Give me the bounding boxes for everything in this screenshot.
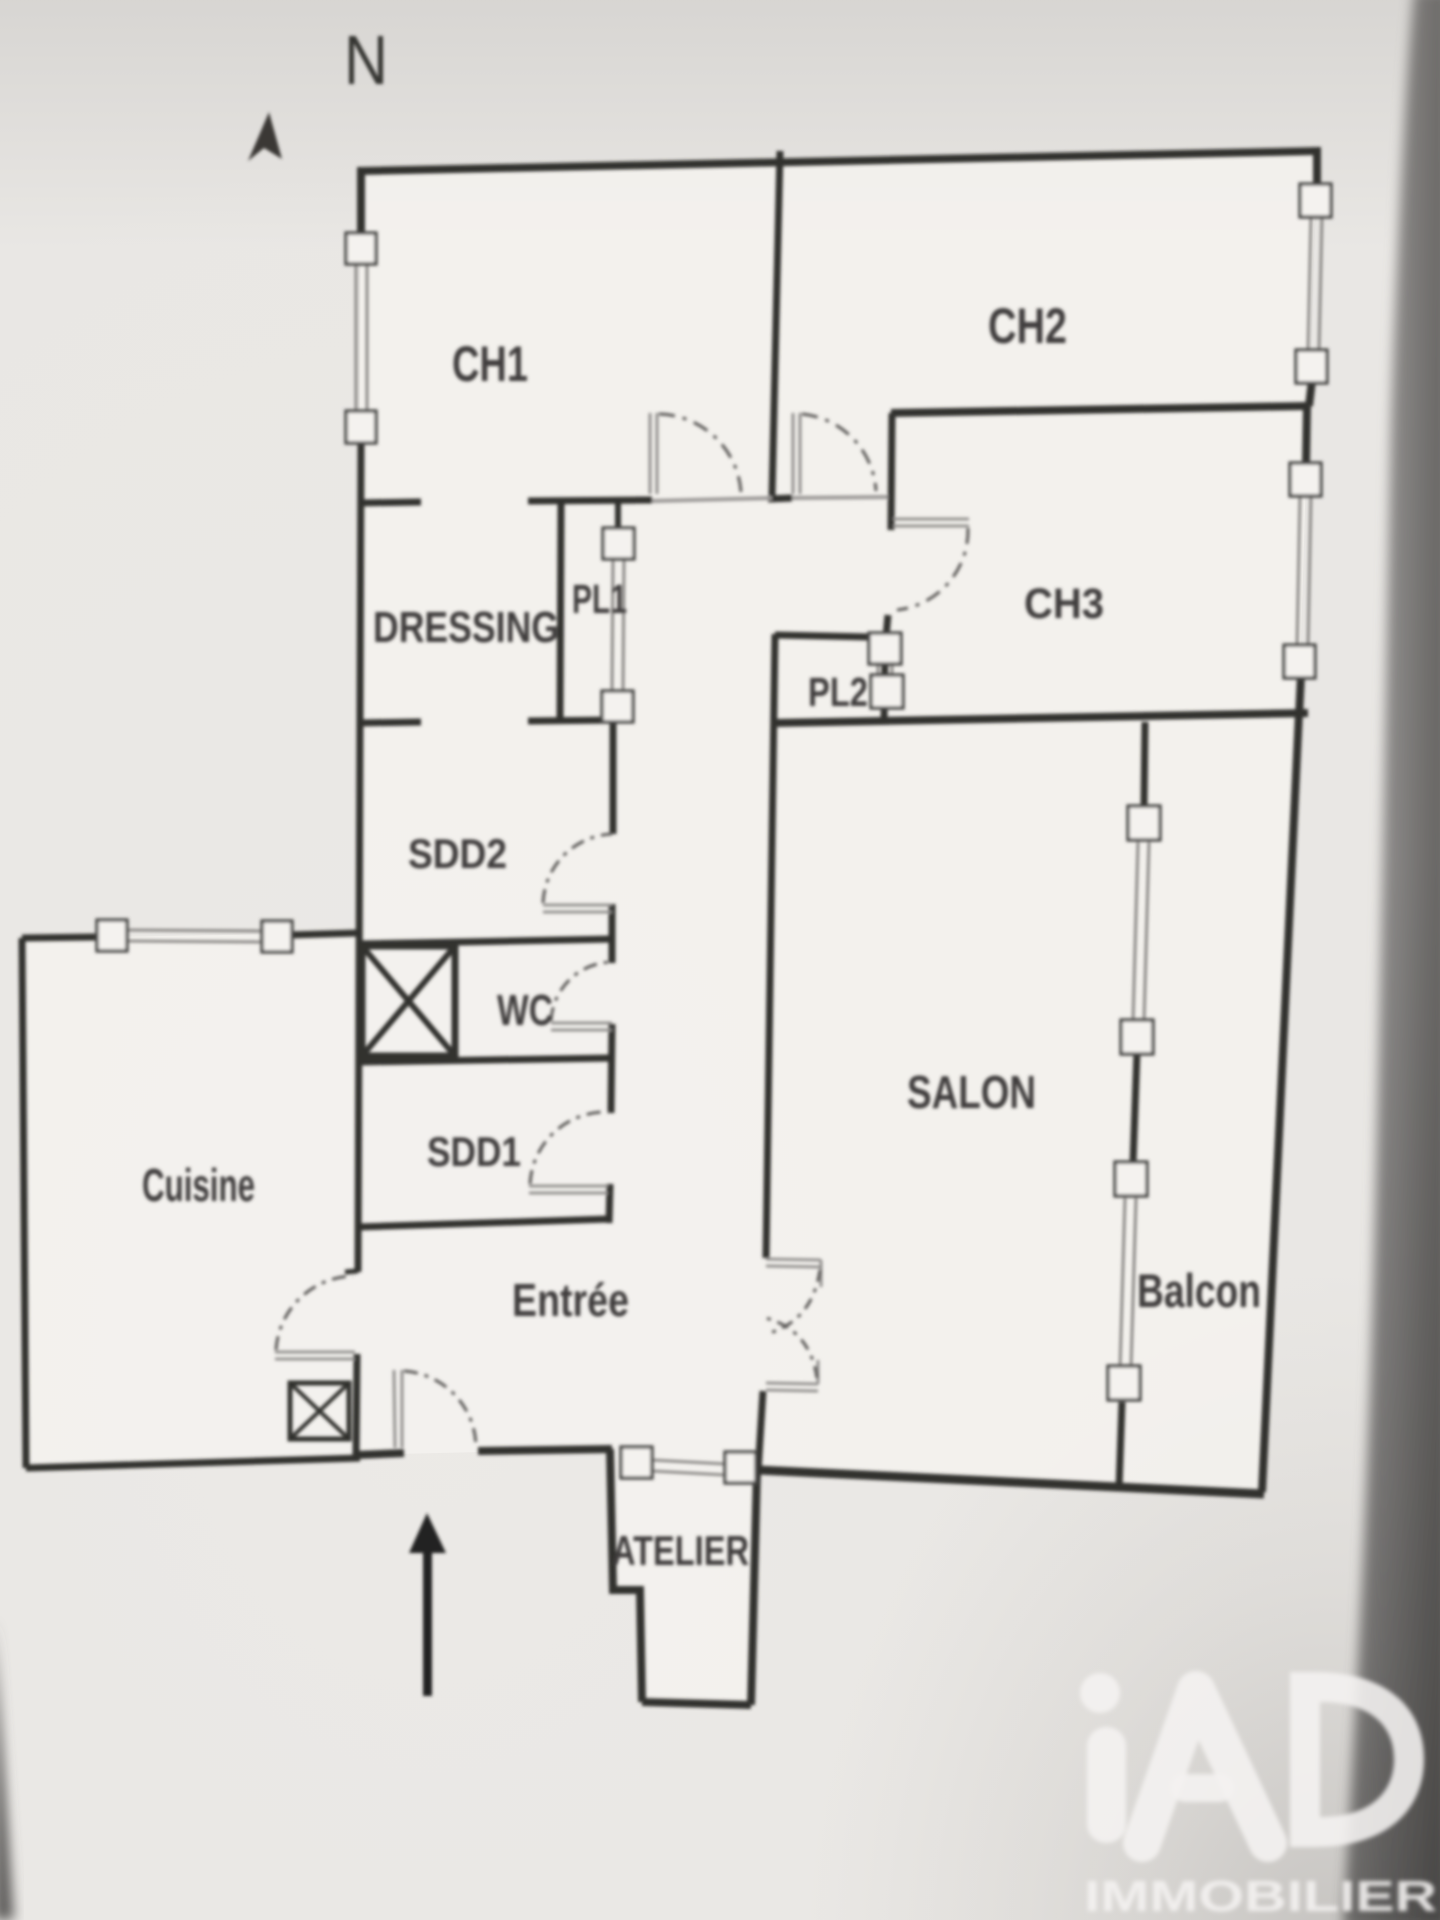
svg-text:IMMOBILIER: IMMOBILIER [1084, 1872, 1437, 1920]
svg-text:DRESSING: DRESSING [373, 603, 559, 652]
svg-text:Cuisine: Cuisine [142, 1159, 255, 1211]
svg-text:WC: WC [497, 986, 553, 1035]
svg-text:SALON: SALON [907, 1066, 1036, 1118]
svg-text:CH2: CH2 [988, 298, 1067, 354]
svg-text:ATELIER: ATELIER [612, 1527, 749, 1574]
svg-text:Balcon: Balcon [1137, 1264, 1261, 1317]
svg-text:N: N [344, 21, 388, 99]
svg-text:SDD1: SDD1 [427, 1128, 521, 1175]
svg-text:CH1: CH1 [452, 336, 528, 392]
svg-text:CH3: CH3 [1024, 580, 1104, 628]
svg-text:SDD2: SDD2 [408, 830, 507, 877]
svg-text:PL2: PL2 [808, 669, 868, 715]
svg-text:Entrée: Entrée [512, 1274, 629, 1326]
svg-text:PL1: PL1 [572, 576, 627, 622]
